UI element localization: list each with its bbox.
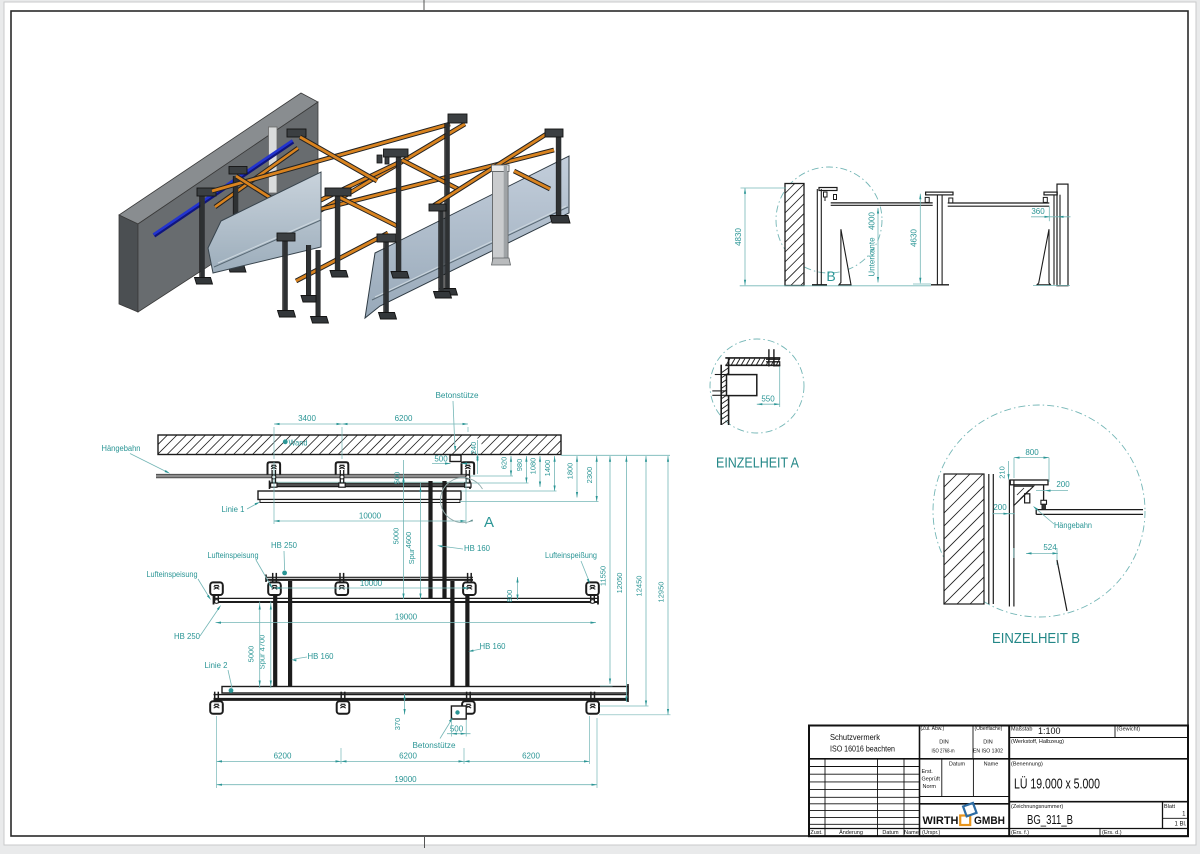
svg-text:200: 200 bbox=[1056, 480, 1070, 489]
svg-text:HB 160: HB 160 bbox=[480, 642, 507, 651]
svg-text:980: 980 bbox=[515, 459, 524, 472]
svg-text:(Gewicht): (Gewicht) bbox=[1117, 727, 1141, 733]
svg-text:EINZELHEIT B: EINZELHEIT B bbox=[992, 631, 1080, 647]
svg-text:800: 800 bbox=[505, 590, 514, 603]
svg-text:EINZELHEIT A: EINZELHEIT A bbox=[716, 456, 799, 472]
svg-text:GMBH: GMBH bbox=[974, 815, 1005, 827]
svg-text:Lufteinspeisung: Lufteinspeisung bbox=[208, 551, 259, 560]
svg-text:500: 500 bbox=[450, 725, 464, 734]
svg-text:DIN: DIN bbox=[983, 740, 993, 746]
svg-text:ISO 2768-m: ISO 2768-m bbox=[932, 749, 955, 755]
svg-text:800: 800 bbox=[1025, 448, 1039, 457]
svg-text:Änderung: Änderung bbox=[839, 829, 863, 836]
svg-text:4630: 4630 bbox=[910, 229, 919, 247]
svg-text:370: 370 bbox=[393, 718, 402, 731]
svg-text:(Benennung): (Benennung) bbox=[1011, 762, 1043, 768]
svg-text:Name: Name bbox=[904, 830, 919, 836]
svg-text:HB 160: HB 160 bbox=[308, 652, 335, 661]
svg-text:19000: 19000 bbox=[394, 775, 417, 784]
svg-text:6200: 6200 bbox=[395, 414, 413, 423]
svg-text:(Urspr.): (Urspr.) bbox=[922, 830, 941, 836]
svg-text:10000: 10000 bbox=[360, 579, 383, 588]
svg-text:524: 524 bbox=[1043, 543, 1057, 552]
svg-text:Hängebahn: Hängebahn bbox=[102, 444, 141, 453]
svg-text:(Zeichnungsnummer): (Zeichnungsnummer) bbox=[1011, 804, 1063, 810]
svg-text:210: 210 bbox=[998, 466, 1007, 479]
svg-text:(Ers. d.): (Ers. d.) bbox=[1102, 830, 1122, 836]
svg-text:6200: 6200 bbox=[522, 752, 540, 761]
svg-text:1 Bl.: 1 Bl. bbox=[1174, 822, 1186, 828]
svg-text:12450: 12450 bbox=[635, 576, 644, 597]
svg-text:DIN: DIN bbox=[939, 740, 949, 746]
svg-text:12050: 12050 bbox=[615, 573, 624, 594]
svg-text:A: A bbox=[484, 514, 494, 531]
svg-text:6200: 6200 bbox=[274, 752, 292, 761]
svg-text:620: 620 bbox=[500, 457, 509, 470]
svg-text:Linie 2: Linie 2 bbox=[205, 661, 229, 670]
svg-text:Norm: Norm bbox=[923, 784, 937, 790]
svg-text:Geprüft: Geprüft bbox=[922, 777, 941, 783]
svg-text:Name: Name bbox=[984, 761, 999, 767]
svg-text:HB 250: HB 250 bbox=[271, 541, 298, 550]
svg-text:Zust.: Zust. bbox=[810, 830, 823, 836]
svg-text:EN ISO 1302: EN ISO 1302 bbox=[973, 749, 1003, 755]
svg-text:Lufteinspeißung: Lufteinspeißung bbox=[545, 551, 597, 560]
svg-text:11550: 11550 bbox=[599, 566, 608, 586]
svg-text:Schutzvermerk: Schutzvermerk bbox=[830, 732, 881, 742]
svg-text:500: 500 bbox=[434, 455, 448, 464]
svg-text:Linie 1: Linie 1 bbox=[222, 505, 246, 514]
svg-text:Maßstab: Maßstab bbox=[1011, 727, 1032, 733]
svg-text:Datum: Datum bbox=[882, 830, 899, 836]
svg-text:1080: 1080 bbox=[529, 458, 538, 475]
svg-text:(Oberfläche): (Oberfläche) bbox=[975, 726, 1003, 732]
svg-text:B: B bbox=[826, 268, 835, 284]
svg-text:(Ers. f.): (Ers. f.) bbox=[1011, 830, 1029, 836]
svg-text:Erst.: Erst. bbox=[922, 769, 934, 775]
svg-text:HB 160: HB 160 bbox=[464, 544, 491, 553]
svg-text:Spur 4700: Spur 4700 bbox=[258, 635, 267, 670]
svg-text:4000: 4000 bbox=[868, 212, 877, 230]
svg-text:12950: 12950 bbox=[657, 582, 666, 603]
svg-text:19000: 19000 bbox=[395, 613, 418, 622]
svg-text:LÜ 19.000 x 5.000: LÜ 19.000 x 5.000 bbox=[1014, 775, 1100, 793]
svg-text:240: 240 bbox=[469, 442, 478, 455]
svg-text:10000: 10000 bbox=[359, 512, 382, 521]
svg-text:1400: 1400 bbox=[543, 460, 552, 477]
svg-text:BG_311_B: BG_311_B bbox=[1027, 812, 1073, 827]
svg-text:Unterkante: Unterkante bbox=[868, 237, 877, 277]
svg-text:HB 250: HB 250 bbox=[174, 632, 201, 641]
svg-text:Blatt: Blatt bbox=[1164, 804, 1175, 810]
svg-text:Wand: Wand bbox=[289, 439, 308, 448]
svg-text:5000: 5000 bbox=[247, 646, 256, 663]
svg-text:1800: 1800 bbox=[566, 463, 575, 480]
svg-text:4830: 4830 bbox=[734, 228, 743, 246]
svg-text:500: 500 bbox=[393, 472, 402, 485]
svg-text:550: 550 bbox=[761, 395, 775, 404]
svg-text:(Zul. Abw.): (Zul. Abw.) bbox=[921, 726, 945, 732]
svg-text:6200: 6200 bbox=[399, 752, 417, 761]
svg-text:4600: 4600 bbox=[404, 532, 413, 549]
svg-text:WIRTH: WIRTH bbox=[923, 815, 959, 827]
svg-text:Spur: Spur bbox=[407, 548, 416, 564]
svg-text:3400: 3400 bbox=[298, 414, 316, 423]
svg-text:360: 360 bbox=[1031, 207, 1045, 216]
svg-text:(Werkstoff, Halbzeug): (Werkstoff, Halbzeug) bbox=[1011, 739, 1064, 745]
svg-text:5000: 5000 bbox=[392, 528, 401, 545]
svg-text:2300: 2300 bbox=[585, 467, 594, 484]
svg-text:Lufteinspeisung: Lufteinspeisung bbox=[147, 570, 198, 579]
svg-text:200: 200 bbox=[993, 503, 1007, 512]
svg-text:Hängebahn: Hängebahn bbox=[1054, 521, 1092, 530]
svg-text:ISO 16016 beachten: ISO 16016 beachten bbox=[830, 744, 895, 754]
svg-text:1:100: 1:100 bbox=[1038, 726, 1061, 736]
svg-text:Betonstütze: Betonstütze bbox=[436, 391, 480, 400]
svg-text:Datum: Datum bbox=[949, 761, 966, 767]
svg-text:Betonstütze: Betonstütze bbox=[413, 741, 457, 750]
